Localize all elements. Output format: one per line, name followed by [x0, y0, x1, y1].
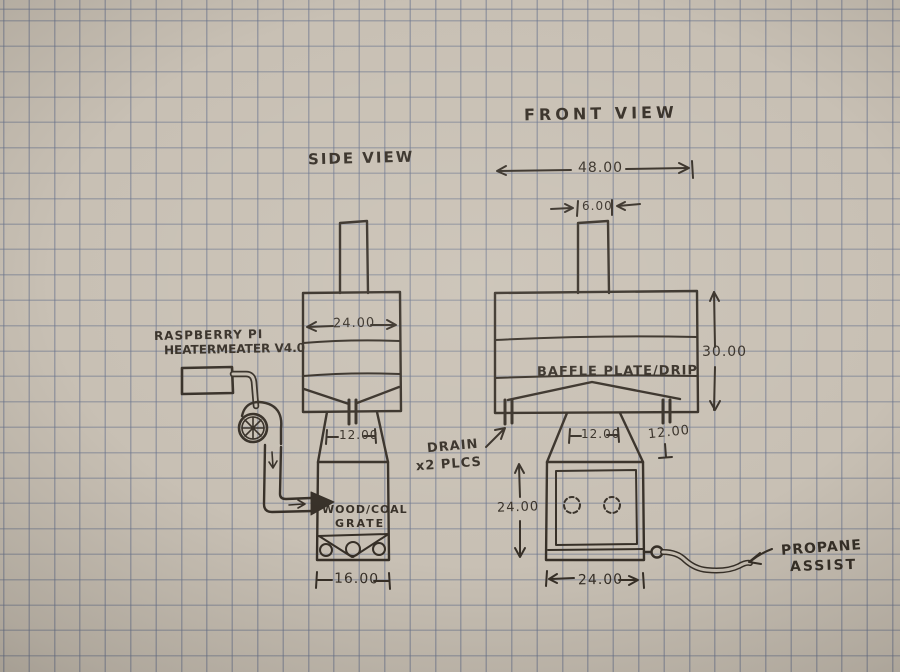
front-dim-6-text: 6.00: [582, 200, 613, 213]
controller-label-line2: HEATERMEATER V4.0: [164, 342, 305, 358]
front-view-title: FRONT VIEW: [524, 104, 678, 124]
front-dim-24-height-text: 24.00: [497, 500, 540, 516]
fan-spokes-icon: [242, 417, 264, 439]
side-view-drawing: [303, 221, 401, 589]
graph-paper: SIDE VIEW FRONT VIEW 48.00 6.00 24.00 12…: [0, 0, 900, 672]
front-firebox-base: [548, 549, 643, 550]
coal-3: [373, 543, 385, 555]
side-chimney: [340, 221, 368, 293]
burner-hole-left: [564, 497, 580, 513]
side-shelf-2: [303, 373, 400, 376]
raspberry-pi-box: [182, 367, 233, 394]
sketch-ink-layer: [0, 0, 900, 672]
side-shelf-1: [303, 340, 400, 343]
front-body: [495, 291, 698, 413]
side-funnel: [304, 387, 399, 404]
drain-callout-arrow: [486, 428, 505, 447]
blower-duct-inner: [280, 447, 311, 499]
front-dim-30-text: 30.00: [702, 345, 747, 360]
front-dim-12-width-text: 12.00: [581, 428, 620, 441]
airflow-arrow-down: [269, 452, 277, 468]
grate-label-line1: WOOD/COAL: [322, 504, 408, 516]
grate-label-line2: GRATE: [335, 518, 385, 530]
coal-2: [346, 542, 360, 556]
front-shelf: [495, 336, 697, 340]
side-dim-16-text: 16.00: [334, 572, 379, 588]
coal-1: [320, 544, 332, 556]
front-baffle-vee: [508, 382, 680, 400]
blower-duct: [264, 445, 313, 512]
front-dim-12-height: [659, 444, 672, 458]
airflow-arrow-right: [289, 500, 305, 508]
baffle-label: BAFFLE PLATE/DRIP: [537, 364, 698, 380]
front-dim-48-text: 48.00: [578, 161, 623, 176]
front-chimney: [578, 221, 609, 293]
side-dim-12-text: 12.00: [339, 429, 378, 442]
side-grate-bar: [318, 534, 388, 536]
side-dim-24-text: 24.00: [333, 317, 375, 332]
controller-blower-drawing: [182, 367, 334, 515]
front-firebox-inner: [556, 470, 637, 545]
propane-callout-arrow: [749, 549, 772, 564]
side-view-title: SIDE VIEW: [308, 149, 415, 168]
propane-label-line2: ASSIST: [790, 558, 858, 576]
burner-hole-right: [604, 497, 620, 513]
front-dim-24-width-text: 24.00: [578, 573, 623, 589]
